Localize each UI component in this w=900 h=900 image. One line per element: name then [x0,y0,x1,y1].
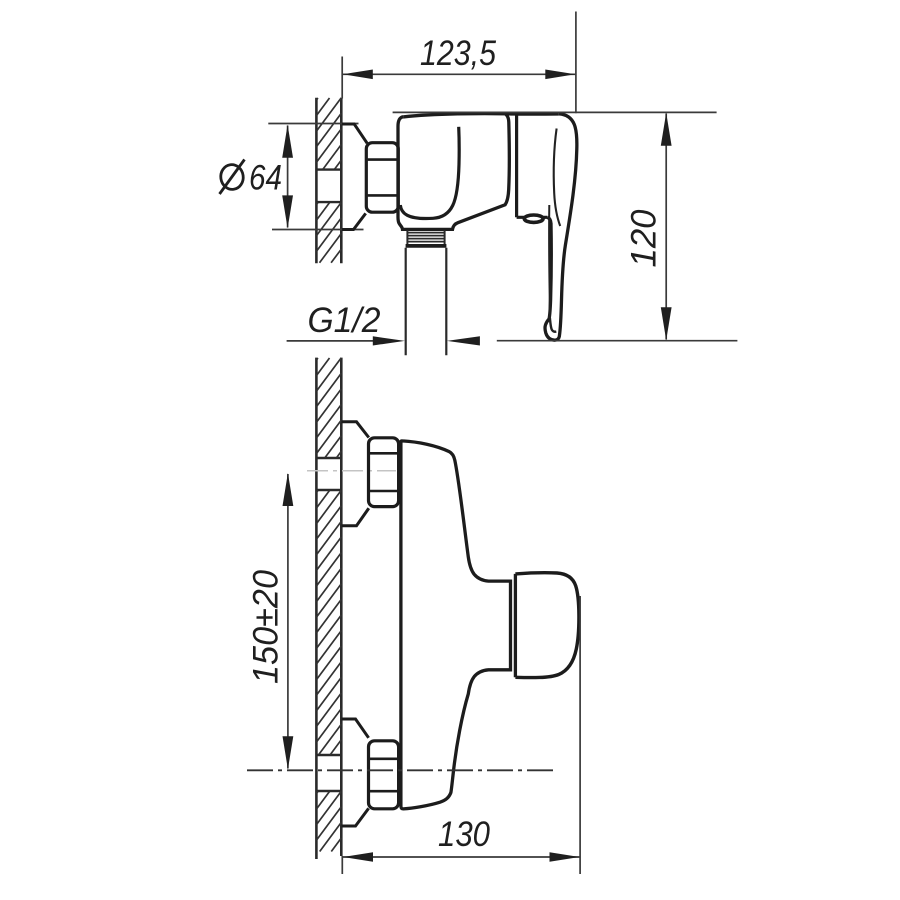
svg-text:64: 64 [249,159,282,198]
svg-text:120: 120 [625,209,664,268]
svg-text:G1/2: G1/2 [308,301,381,340]
svg-text:150±20: 150±20 [247,569,286,684]
svg-text:130: 130 [438,815,490,854]
svg-text:123,5: 123,5 [420,34,496,73]
